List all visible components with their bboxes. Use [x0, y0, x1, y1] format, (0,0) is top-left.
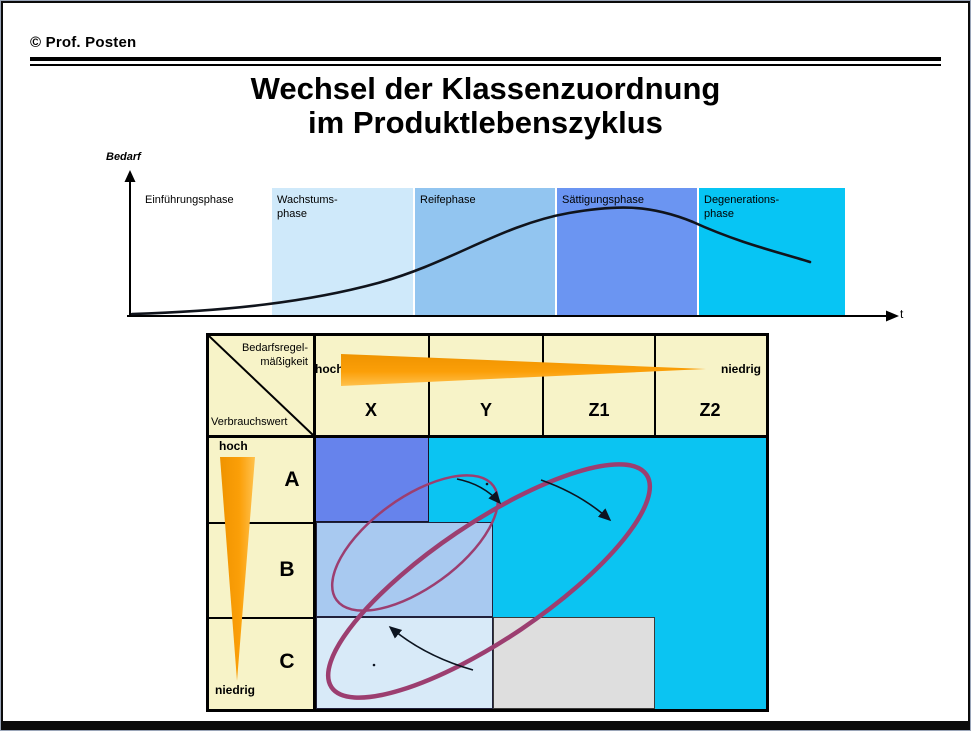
phase-label: Einführungsphase: [140, 188, 271, 207]
corner-col-axis-label: Bedarfsregel- mäßigkeit: [209, 341, 308, 369]
col-header-z1: Z1: [569, 400, 629, 421]
x-axis-label: t: [900, 307, 903, 321]
row-header-b: B: [265, 558, 309, 582]
col-header-z2: Z2: [680, 400, 740, 421]
corner-row-axis-label: Verbrauchswert: [211, 416, 287, 428]
col-scale-wedge-icon: [341, 354, 706, 386]
phase-label-line2: phase: [272, 207, 413, 221]
row-header-a: A: [270, 468, 314, 492]
screen-frame: © Prof. Posten Wechsel der Klassenzuordn…: [0, 0, 971, 731]
phase-label-line2: phase: [699, 207, 845, 221]
copyright-label: © Prof. Posten: [30, 34, 136, 51]
x-axis-arrow-icon: [886, 311, 899, 322]
row-scale-wedge-icon: [220, 457, 255, 681]
grid-line-header-row: [209, 435, 766, 438]
slide-title: Wechsel der Klassenzuordnung im Produktl…: [3, 72, 968, 140]
col-scale-low-label: niedrig: [706, 362, 761, 376]
phase-label: Degenerations-: [699, 188, 845, 207]
phase-band-reife: Reifephase: [415, 188, 555, 316]
phase-band-wachstum: Wachstums- phase: [272, 188, 413, 316]
row-scale-low-label: niedrig: [215, 683, 255, 697]
phase-band-degeneration: Degenerations- phase: [699, 188, 845, 316]
header-rule-thin: [30, 64, 941, 66]
cell-a-x-blue: [316, 438, 429, 522]
row-c-class-region: [316, 617, 493, 709]
col-header-x: X: [341, 400, 401, 421]
grid-line-b-c: [209, 617, 313, 619]
slide: © Prof. Posten Wechsel der Klassenzuordn…: [1, 1, 970, 730]
row-header-c: C: [265, 650, 309, 674]
y-axis-arrow-icon: [125, 170, 136, 182]
col-header-y: Y: [456, 400, 516, 421]
corner-col-axis-line1: Bedarfsregel-: [209, 341, 308, 355]
classification-matrix: Bedarfsregel- mäßigkeit Verbrauchswert h…: [206, 333, 769, 712]
phase-band-saettigung: Sättigungsphase: [557, 188, 697, 316]
row-scale-high-label: hoch: [219, 439, 248, 453]
phase-label: Reifephase: [415, 188, 555, 207]
grid-line-label-column: [313, 336, 316, 709]
col-scale-high-label: hoch: [315, 362, 344, 376]
phase-label: Wachstums-: [272, 188, 413, 207]
slide-title-line2: im Produktlebenszyklus: [3, 106, 968, 140]
row-b-class-region: [316, 522, 493, 617]
slide-title-line1: Wechsel der Klassenzuordnung: [3, 72, 968, 106]
header-rule-thick: [30, 57, 941, 61]
phase-label: Sättigungsphase: [557, 188, 697, 207]
phase-band-einfuehrung: Einführungsphase: [140, 188, 271, 316]
corner-col-axis-line2: mäßigkeit: [209, 355, 308, 369]
y-axis-label: Bedarf: [106, 151, 141, 163]
grid-line-a-b: [209, 522, 313, 524]
row-c-gray-region: [493, 617, 655, 709]
grid-line-x-y: [428, 336, 430, 435]
grid-line-z1-z2: [654, 336, 656, 435]
grid-line-y-z1: [542, 336, 544, 435]
